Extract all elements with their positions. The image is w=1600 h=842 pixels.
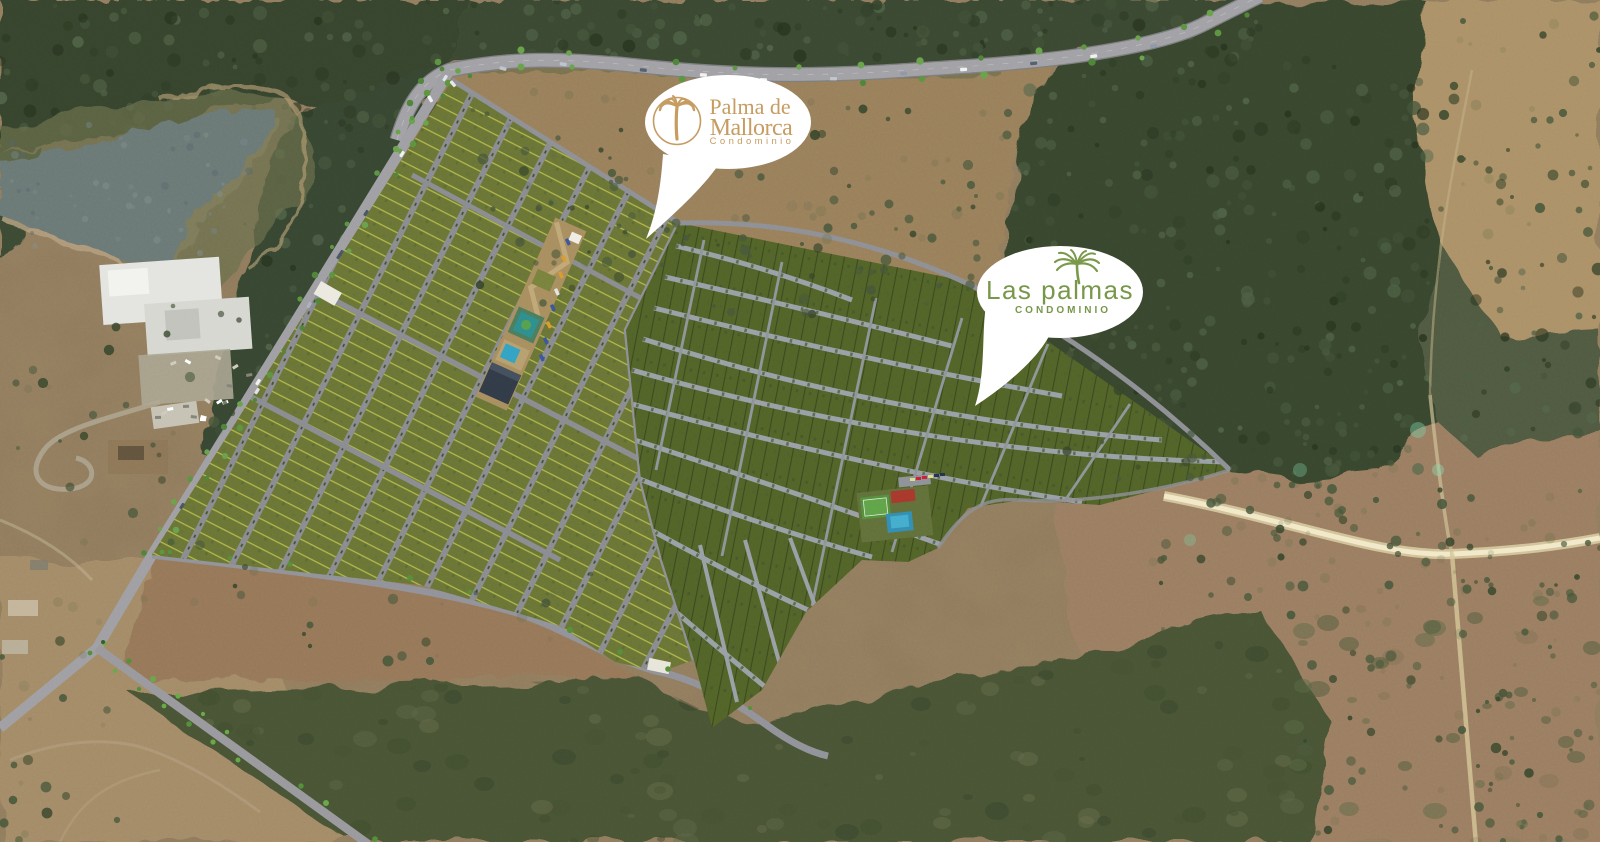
svg-text:Las palmas: Las palmas — [986, 275, 1134, 305]
svg-text:CONDOMINIO: CONDOMINIO — [1015, 305, 1111, 316]
svg-text:Condominio: Condominio — [710, 136, 795, 147]
